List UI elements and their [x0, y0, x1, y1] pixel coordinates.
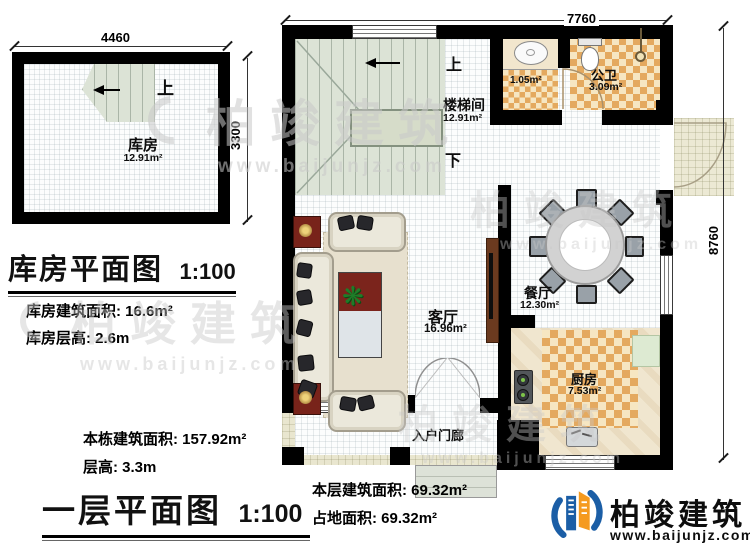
- floor-dim-top: 7760: [564, 11, 599, 26]
- kitchen-sink-icon: [566, 427, 598, 447]
- plant-icon: ❋: [342, 283, 364, 309]
- wall: [508, 315, 535, 328]
- wall: [282, 25, 673, 39]
- storage-note-area: 库房建筑面积: 16.6m²: [26, 300, 173, 321]
- floor-height-note: 层高: 3.3m: [83, 456, 156, 477]
- stove-burner-flame: [521, 393, 525, 397]
- dimension-line: [723, 28, 724, 460]
- table-lamp-icon: [299, 224, 312, 237]
- wall: [660, 315, 673, 470]
- table-lamp-icon: [299, 391, 312, 404]
- stair-landing: [350, 109, 443, 147]
- sofa-pillow: [339, 396, 357, 413]
- shower-hose: [640, 28, 642, 53]
- storage-dim-top: 4460: [98, 30, 133, 45]
- entry-double-door: [415, 358, 480, 398]
- window: [660, 255, 673, 315]
- dining-chair: [625, 236, 644, 257]
- dining-area: 12.30m²: [520, 299, 559, 311]
- dining-table-top: [559, 219, 611, 271]
- kitchen-area: 7.53m²: [568, 385, 601, 397]
- wall-corner: [497, 420, 539, 470]
- stair-up-label: 上: [446, 51, 462, 75]
- wall: [558, 25, 570, 68]
- wall: [490, 110, 562, 125]
- sofa-pillow: [356, 215, 374, 231]
- this-floor-area-note: 本层建筑面积: 69.32m²: [312, 479, 467, 500]
- footprint-area-note: 占地面积: 69.32m²: [312, 507, 437, 528]
- storage-plan-title-block: 库房平面图 1:100: [8, 246, 236, 297]
- floorplan-page: 上 库房 12.91m² 4460 3300 库房平面图 1:100 库房建筑面…: [0, 0, 750, 556]
- storage-note-height: 库房层高: 2.6m: [26, 327, 129, 348]
- bath-area: 3.09m²: [589, 81, 622, 93]
- sofa-pillow: [297, 354, 315, 372]
- tv-icon: [489, 253, 493, 319]
- floor-dim-side: 8760: [706, 223, 721, 258]
- stair-arrow-line: [102, 89, 120, 91]
- dimension-line: [247, 58, 248, 222]
- storage-dim-side: 3300: [228, 118, 243, 153]
- wall: [615, 455, 673, 470]
- stove-burner-flame: [521, 378, 525, 382]
- title-underline: [8, 291, 236, 294]
- title-underline-thin: [8, 296, 236, 297]
- porch-name: 入户门廊: [412, 425, 464, 444]
- sofa-pillow: [296, 262, 313, 279]
- watermark-url: www.baijunjz.com: [80, 354, 310, 375]
- wall: [660, 190, 673, 255]
- living-area: 16.96m²: [424, 323, 467, 335]
- stairwell-area: 12.91m²: [443, 112, 482, 124]
- window: [352, 25, 437, 39]
- brand-logo: [548, 486, 606, 542]
- alcove-area: 1.05m²: [510, 75, 542, 86]
- toilet-tank: [578, 38, 602, 46]
- porch-column: [390, 447, 410, 465]
- stair-arrow-line: [374, 62, 400, 64]
- washbasin-drain: [526, 49, 535, 56]
- title-underline: [42, 535, 310, 538]
- porch-column: [282, 447, 304, 465]
- alcove-divider: [503, 69, 558, 70]
- floor-plan-title: 一层平面图: [42, 492, 222, 529]
- storage-room-area: 12.91m²: [110, 152, 176, 164]
- brand-building-icon: [548, 486, 606, 542]
- kitchen-counter: [632, 335, 660, 367]
- building-area-note: 本栋建筑面积: 157.92m²: [83, 428, 246, 449]
- side-door: [674, 121, 730, 191]
- sofa-pillow: [296, 289, 313, 306]
- dimension-line: [285, 20, 668, 21]
- wall: [480, 398, 498, 413]
- storage-plan-title: 库房平面图: [8, 254, 163, 286]
- floor-plan-title-block: 一层平面图 1:100: [42, 484, 310, 541]
- storage-plan-scale: 1:100: [179, 259, 235, 284]
- title-underline-thin: [42, 540, 310, 541]
- shower-head-icon: [635, 51, 646, 62]
- storage-stair-up-label: 上: [157, 74, 174, 99]
- dimension-line: [14, 46, 228, 47]
- floor-plan-scale: 1:100: [238, 500, 302, 528]
- floor-plan: 上 下 楼梯间 12.91m² 公卫 3.09m² 1.05m²: [282, 25, 678, 470]
- brand-url: www.baijunjz.com: [610, 527, 750, 543]
- dining-chair: [576, 285, 597, 304]
- wall: [602, 110, 673, 125]
- window: [545, 455, 615, 470]
- stair-down-label: 下: [445, 147, 461, 171]
